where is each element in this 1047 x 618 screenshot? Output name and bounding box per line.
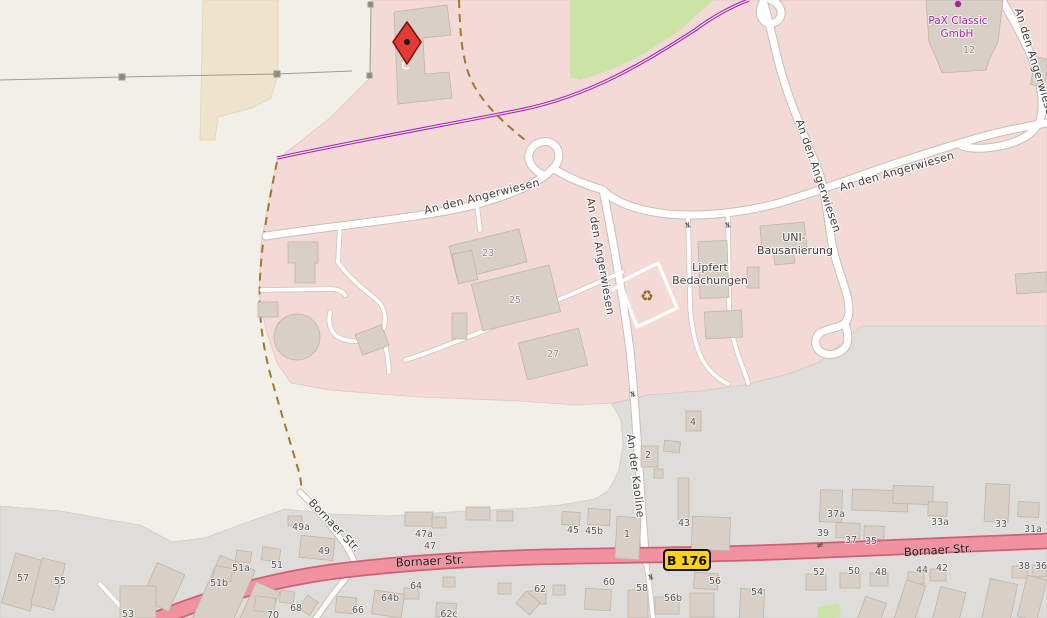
marker-dot (404, 39, 410, 45)
house-number-label: 37a (827, 509, 845, 520)
house-number-label: 35 (865, 536, 877, 547)
house-number-label: 62 (534, 584, 546, 595)
lift-gate-icon: ≠ (645, 573, 655, 581)
house-number-label: 45b (585, 526, 603, 537)
business-poi-dot (955, 1, 961, 7)
house-number-label: 23 (482, 248, 494, 259)
map-canvas[interactable]: ≠ ≠ ≠ ≠ ≠ ♻ B 176 An den Angerwiesen An … (0, 0, 1047, 618)
business-label-pax-1: PaX Classic (928, 15, 987, 27)
business-label-uni-1: UNI- (782, 231, 806, 244)
house-number-label: 47 (424, 541, 436, 552)
house-number-label: 54 (751, 587, 763, 598)
fence-node (119, 74, 125, 80)
house-number-label: 37 (845, 535, 857, 546)
fence-node (274, 71, 280, 77)
house-number-label: 33a (931, 517, 949, 528)
house-number-label: 56b (664, 593, 682, 604)
house-number-label: 27 (547, 349, 559, 360)
house-number-label: 25 (509, 295, 521, 306)
business-label-pax-2: GmbH (941, 28, 974, 40)
house-number-label: 36 (1035, 561, 1047, 572)
fence-node (367, 73, 372, 78)
house-number-label: 70 (267, 610, 279, 618)
house-number-label: 44 (916, 565, 928, 576)
lift-gate-icon: ≠ (816, 541, 824, 551)
house-number-label: 45 (567, 525, 579, 536)
house-number-label: 38 (1018, 561, 1030, 572)
house-number-label: 12 (963, 45, 975, 56)
house-number-label: 64b (381, 593, 399, 604)
business-label-lipfert-1: Lipfert (692, 261, 728, 274)
house-number-label: 50 (848, 566, 860, 577)
house-number-label: 51a (232, 563, 250, 574)
house-number-label: 62c (440, 609, 457, 618)
house-number-label: 55 (54, 576, 66, 587)
recycling-icon: ♻ (640, 287, 653, 305)
house-number-label: 53 (122, 609, 134, 618)
lift-gate-icon: ≠ (627, 390, 637, 398)
house-number-label: 57 (17, 573, 29, 584)
house-number-label: 4 (690, 417, 696, 428)
house-number-label: 66 (352, 605, 364, 616)
house-number-label: 68 (290, 603, 302, 614)
house-number-label: 49a (292, 522, 310, 533)
house-number-label: 33 (995, 519, 1007, 530)
house-number-label: 58 (636, 583, 648, 594)
house-number-label: 48 (875, 567, 887, 578)
house-number-label: 49 (318, 546, 330, 557)
house-number-label: 2 (645, 450, 651, 461)
house-number-label: 56 (709, 576, 721, 587)
business-label-uni-2: Bausanierung (757, 244, 833, 257)
house-number-label: 31a (1024, 524, 1042, 535)
road-badge: B 176 (664, 550, 710, 570)
lift-gate-icon: ≠ (722, 221, 732, 229)
business-label-lipfert-2: Bedachungen (672, 274, 748, 287)
house-number-label: 42 (936, 563, 948, 574)
house-number-label: 51b (210, 578, 228, 589)
house-number-label: 52 (813, 567, 825, 578)
fence-node (368, 2, 373, 7)
lift-gate-icon: ≠ (682, 221, 692, 229)
map-viewport[interactable]: ≠ ≠ ≠ ≠ ≠ ♻ B 176 An den Angerwiesen An … (0, 0, 1047, 618)
house-number-label: 39 (817, 528, 829, 539)
house-number-label: 51 (271, 560, 283, 571)
house-number-label: 60 (603, 577, 615, 588)
road-badge-label: B 176 (667, 553, 707, 568)
house-number-label: 64 (410, 581, 422, 592)
house-number-label: 47a (415, 529, 433, 540)
house-number-label: 1 (624, 529, 630, 540)
house-number-label: 43 (678, 518, 690, 529)
